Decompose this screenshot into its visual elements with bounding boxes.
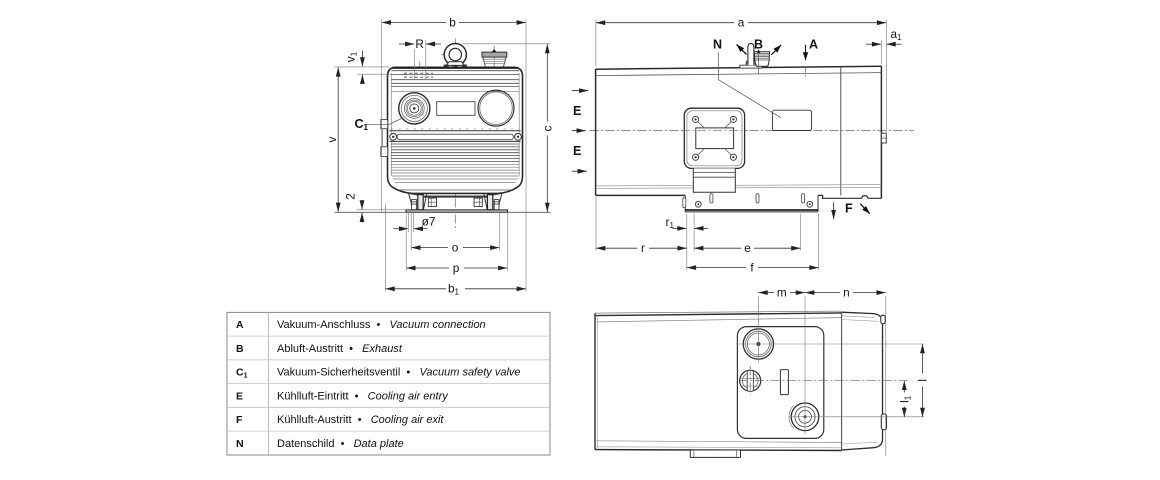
svg-text:Datenschild • Data plate: Datenschild • Data plate	[277, 438, 404, 450]
svg-text:F: F	[236, 414, 243, 426]
svg-text:v: v	[325, 136, 339, 142]
svg-text:a: a	[738, 16, 745, 30]
svg-text:ø7: ø7	[422, 215, 436, 229]
svg-text:Kühlluft-Austritt • Cooling: Kühlluft-Austritt • Cooling air exit	[277, 414, 444, 426]
svg-text:R: R	[415, 37, 424, 51]
svg-text:N: N	[236, 438, 244, 450]
svg-text:p: p	[453, 261, 460, 275]
svg-text:e: e	[744, 241, 751, 255]
svg-text:E: E	[236, 390, 243, 402]
svg-text:A: A	[809, 38, 818, 52]
svg-text:r: r	[641, 241, 645, 255]
svg-text:Vakuum-Anschluss • Vacuum c: Vakuum-Anschluss • Vacuum connection	[277, 319, 486, 331]
svg-text:n: n	[843, 286, 850, 300]
svg-text:m: m	[777, 286, 787, 300]
svg-text:Kühlluft-Eintritt • Cooling: Kühlluft-Eintritt • Cooling air entry	[277, 390, 449, 402]
svg-text:N: N	[713, 38, 722, 52]
svg-text:E: E	[573, 104, 581, 118]
svg-text:B: B	[754, 38, 763, 52]
svg-text:l: l	[916, 379, 930, 382]
svg-text:Abluft-Austritt • Exhaust: Abluft-Austritt • Exhaust	[277, 343, 403, 355]
svg-text:b: b	[449, 15, 456, 29]
svg-text:A: A	[236, 319, 244, 331]
svg-text:o: o	[452, 240, 459, 254]
svg-text:2: 2	[344, 193, 358, 200]
svg-text:F: F	[845, 201, 853, 215]
svg-text:E: E	[573, 144, 581, 158]
svg-text:B: B	[236, 343, 244, 355]
svg-text:c: c	[540, 125, 554, 131]
svg-text:Vakuum-Sicherheitsventil •: Vakuum-Sicherheitsventil • Vacuum safety…	[277, 367, 521, 379]
